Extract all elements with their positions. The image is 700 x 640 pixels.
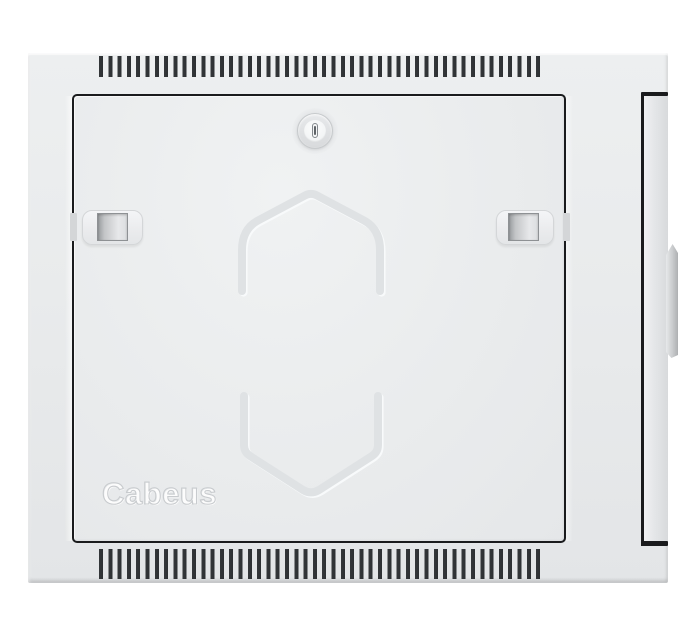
keyhole-icon — [312, 123, 318, 138]
bottom-vent-grille — [99, 549, 544, 579]
product-photo-stage: Cabeus — [0, 0, 700, 640]
brand-logo: Cabeus — [102, 476, 217, 512]
left-seam-latch-tab — [70, 213, 77, 241]
hinge-latch-left — [82, 210, 143, 245]
top-vent-grille — [99, 56, 544, 77]
hinge-latch-right — [496, 210, 554, 245]
side-panel — [644, 96, 668, 541]
side-panel-bottom-seam — [641, 541, 668, 546]
hinge-latch-left-slot — [97, 213, 128, 241]
hinge-latch-right-slot — [508, 213, 539, 241]
keyhole-pin — [314, 126, 316, 135]
right-seam-latch-tab — [563, 213, 570, 241]
side-panel-handle — [666, 244, 678, 358]
